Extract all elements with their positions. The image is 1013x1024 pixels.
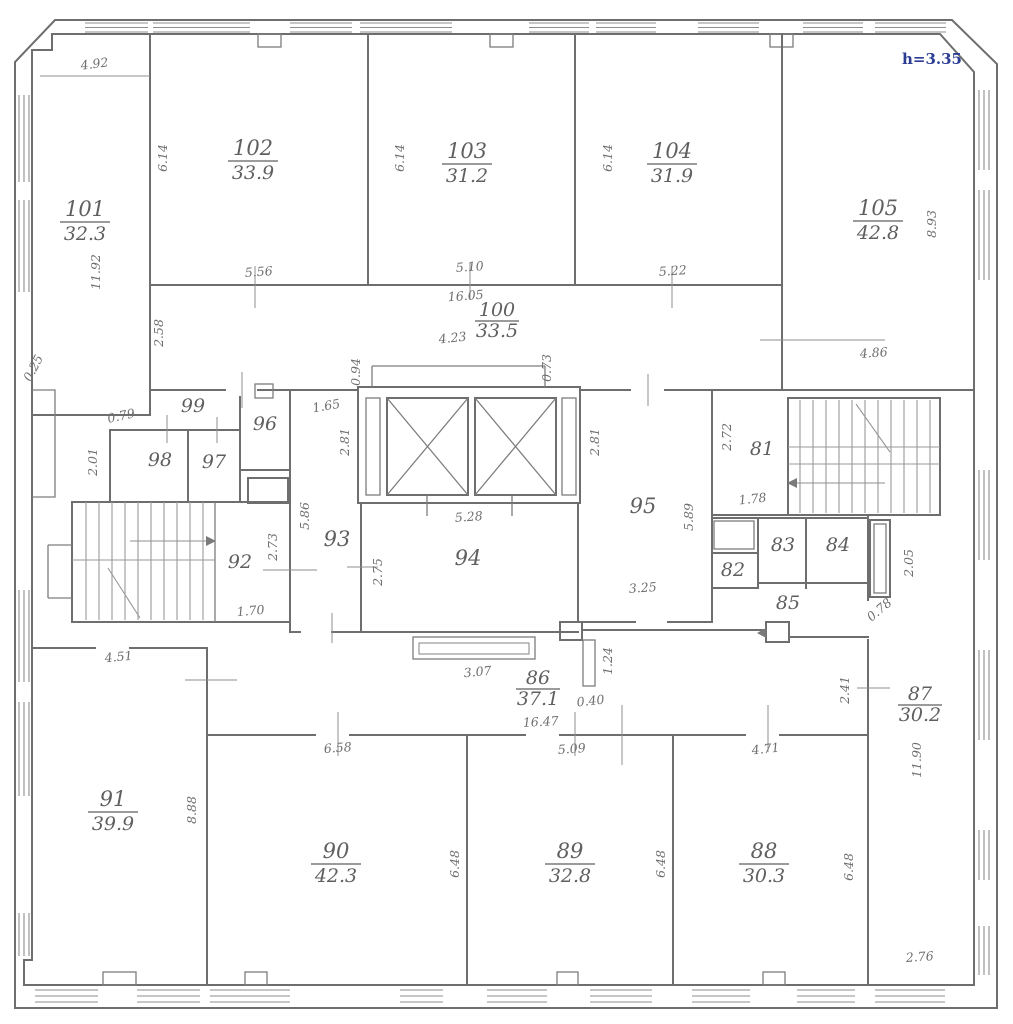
dim-5-22: 5.22: [658, 262, 687, 279]
room-number: 89: [557, 839, 584, 863]
room-89-label: 89 32.8: [545, 839, 595, 887]
room-84-label: 84: [826, 534, 850, 556]
dim-5-28: 5.28: [454, 508, 483, 525]
room-number: 91: [100, 787, 127, 811]
room-area: 33.5: [476, 320, 518, 342]
dim-11-90: 11.90: [909, 742, 924, 778]
room-103-label: 103 31.2: [442, 139, 492, 187]
room-97-label: 97: [202, 451, 227, 473]
room-area: 33.9: [232, 162, 274, 184]
room-99-label: 99: [181, 395, 205, 417]
room-87-label: 87 30.2: [898, 683, 942, 726]
dim-2-05: 2.05: [901, 549, 916, 578]
dim-2-01: 2.01: [85, 448, 100, 477]
room-area: 42.3: [314, 865, 357, 887]
room-number: 103: [447, 139, 487, 163]
dim-2-81: 2.81: [337, 428, 352, 457]
dim-0-25: 0.25: [20, 352, 46, 384]
dim-8-88: 8.88: [184, 796, 199, 824]
dim-16-47: 16.47: [522, 713, 559, 730]
room-number: 101: [65, 197, 105, 221]
dim-2-41: 2.41: [837, 676, 852, 705]
room-number: 104: [652, 139, 692, 163]
floor-plan-svg: 101 32.3 102 33.9 103 31.2 104 31.9 105 …: [0, 0, 1013, 1024]
room-number: 90: [323, 839, 350, 863]
room-96-label: 96: [253, 413, 277, 435]
room-area: 32.8: [549, 865, 591, 887]
dim-6-14: 6.14: [155, 144, 170, 172]
room-100-label: 100 33.5: [475, 299, 519, 342]
dim-2-73: 2.73: [265, 533, 280, 562]
dim-8-93: 8.93: [924, 210, 939, 238]
room-104-label: 104 31.9: [647, 139, 697, 187]
room-number: 88: [751, 839, 778, 863]
dim-1-70: 1.70: [236, 602, 265, 619]
room-area: 31.9: [651, 165, 693, 187]
room-area: 42.8: [856, 222, 899, 244]
dim-2-75: 2.75: [370, 558, 385, 587]
room-82-label: 82: [721, 559, 745, 581]
dim-0-73: 0.73: [539, 354, 554, 382]
room-area: 37.1: [517, 688, 559, 710]
room-101-label: 101 32.3: [60, 197, 110, 245]
ceiling-height-note: h=3.35: [902, 50, 962, 68]
dim-1-78: 1.78: [738, 490, 767, 508]
dim-4-92: 4.92: [79, 54, 109, 72]
room-86-label: 86 37.1: [516, 667, 560, 710]
dim-11-92: 11.92: [88, 254, 103, 290]
dim-4-86: 4.86: [858, 344, 888, 361]
room-number: 87: [908, 683, 933, 705]
room-number: 100: [479, 299, 515, 321]
room-number: 102: [233, 136, 273, 160]
dim-4-51: 4.51: [103, 648, 133, 665]
room-85-label: 85: [776, 592, 800, 614]
room-area: 30.2: [899, 704, 941, 726]
dim-4-71: 4.71: [750, 740, 780, 758]
room-number: 105: [858, 196, 898, 220]
dim-0-40: 0.40: [576, 692, 605, 710]
interior-walls: [32, 34, 974, 985]
room-number: 86: [526, 667, 550, 689]
floor-plan-page: 101 32.3 102 33.9 103 31.2 104 31.9 105 …: [0, 0, 1013, 1024]
room-93-label: 93: [324, 527, 351, 551]
room-98-label: 98: [148, 449, 172, 471]
dim-2-81: 2.81: [587, 428, 602, 457]
dim-6-14: 6.14: [392, 144, 407, 172]
room-area: 32.3: [64, 223, 106, 245]
dim-1-65: 1.65: [311, 396, 341, 416]
room-92-label: 92: [228, 551, 252, 573]
dim-16-05: 16.05: [447, 287, 484, 304]
dim-6-14: 6.14: [600, 144, 615, 172]
room-83-label: 83: [771, 534, 795, 556]
dim-5-56: 5.56: [244, 263, 273, 280]
dim-6-58: 6.58: [323, 739, 352, 756]
dim-2-76: 2.76: [904, 948, 934, 965]
dim-6-48: 6.48: [841, 853, 856, 881]
dim-2-72: 2.72: [719, 423, 734, 452]
room-102-label: 102 33.9: [228, 136, 278, 184]
dim-6-48: 6.48: [653, 850, 668, 878]
room-area: 31.2: [446, 165, 488, 187]
dim-0-94: 0.94: [348, 358, 363, 386]
dim-3-07: 3.07: [463, 663, 492, 680]
dim-0-79: 0.79: [106, 405, 136, 425]
dim-4-23: 4.23: [437, 329, 467, 347]
dim-3-25: 3.25: [628, 579, 657, 596]
dim-6-48: 6.48: [447, 850, 462, 878]
dim-5-09: 5.09: [557, 740, 586, 757]
room-105-label: 105 42.8: [853, 196, 903, 244]
room-area: 30.3: [743, 865, 785, 887]
dimension-labels: 4.92 6.14 6.14 6.14 11.92 8.93 5.56 5.10…: [20, 54, 939, 965]
room-88-label: 88 30.3: [739, 839, 789, 887]
dim-1-24: 1.24: [600, 647, 615, 675]
dim-5-10: 5.10: [455, 258, 484, 275]
room-95-label: 95: [630, 494, 657, 518]
dim-2-58: 2.58: [151, 319, 166, 348]
room-90-label: 90 42.3: [311, 839, 361, 887]
room-81-label: 81: [750, 438, 774, 460]
dim-5-86: 5.86: [297, 502, 312, 530]
room-area: 39.9: [92, 813, 134, 835]
room-94-label: 94: [455, 546, 482, 570]
dim-5-89: 5.89: [681, 503, 696, 531]
room-91-label: 91 39.9: [88, 787, 138, 835]
room-labels: 101 32.3 102 33.9 103 31.2 104 31.9 105 …: [60, 136, 942, 887]
